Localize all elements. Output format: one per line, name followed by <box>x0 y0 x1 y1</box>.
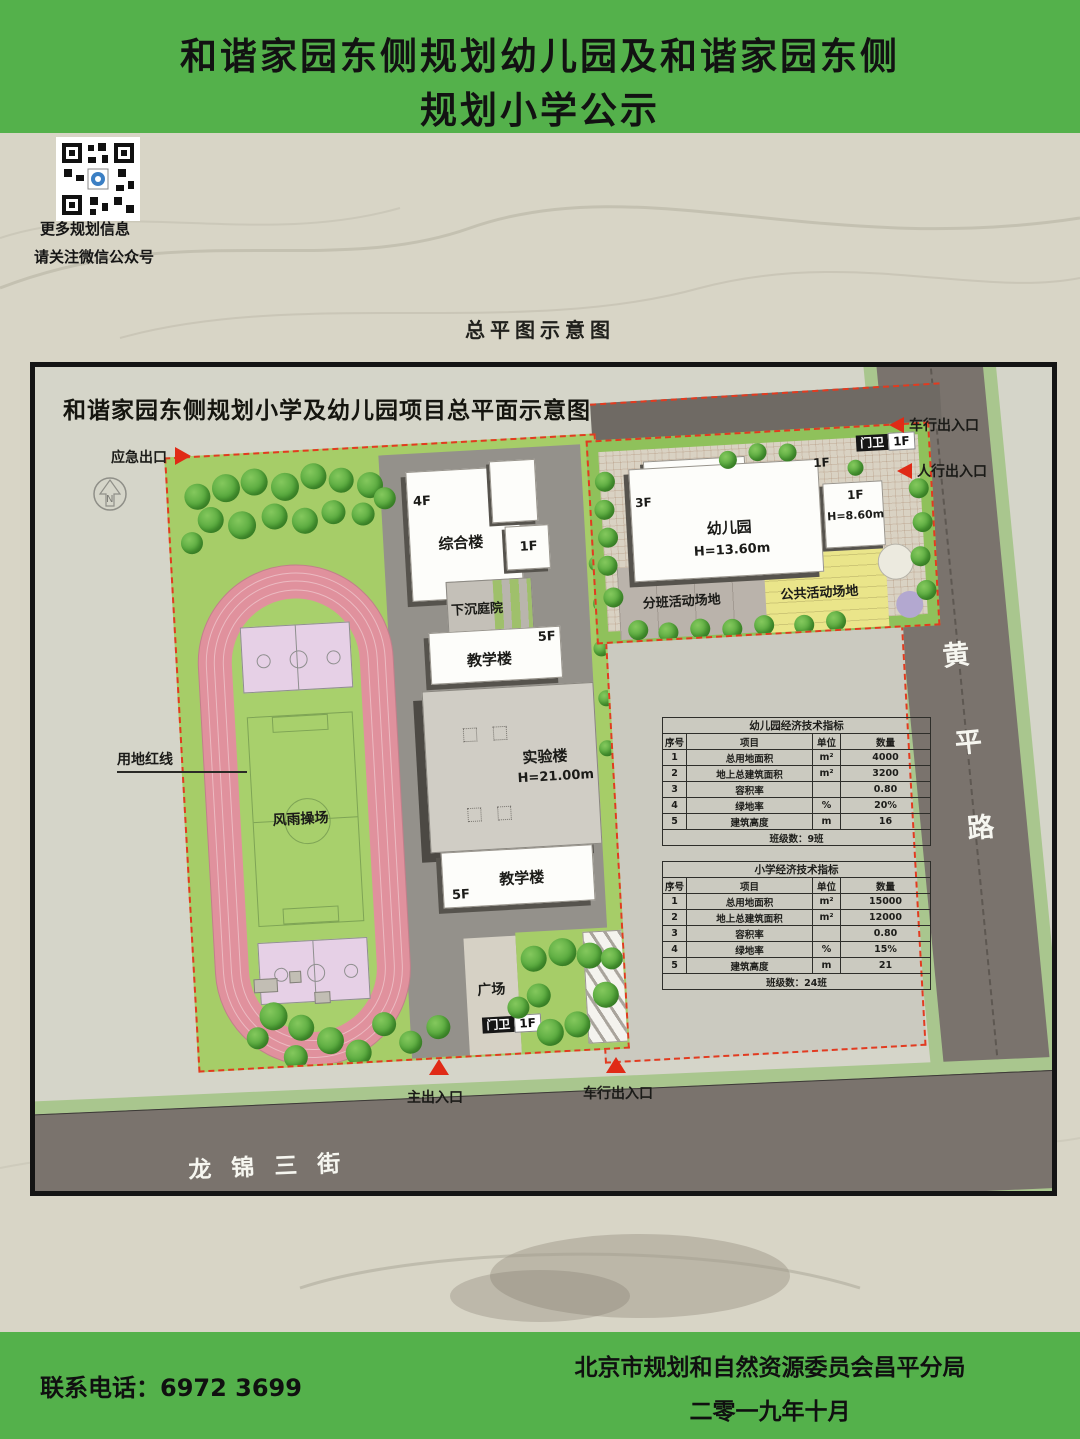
parking-area <box>582 930 628 1044</box>
table-row: 1 总用地面积 m² 4000 <box>663 750 931 766</box>
play-equipment <box>253 978 278 993</box>
kindergarten-east-wing: 1F H=8.60m <box>822 480 886 548</box>
kindergarten-gatehouse: 门卫1F <box>856 429 916 452</box>
poster-title-line1: 和谐家园东侧规划幼儿园及和谐家园东侧 <box>0 26 1080 80</box>
cell: 3 <box>663 926 687 942</box>
footer-banner: 联系电话：6972 3699 北京市规划和自然资源委员会昌平分局 二零一九年十月 <box>0 1332 1080 1439</box>
cell: 建筑高度 <box>687 814 813 830</box>
vehicle-entrance-north-arrow-icon <box>889 417 904 433</box>
road-east-name-char2: 平 <box>953 719 984 760</box>
table-title: 小学经济技术指标 <box>663 862 931 878</box>
cell: 1 <box>663 894 687 910</box>
plaza: 广场 <box>463 936 521 1056</box>
red-line-leader <box>117 771 247 773</box>
road-east-name-char1: 黄 <box>940 632 971 673</box>
primary-school-indicators-table: 小学经济技术指标 序号 项目 单位 数量 1 总用地面积 m² 15000 2 … <box>662 861 931 990</box>
kindergarten-height-label: H=13.60m <box>694 541 771 560</box>
center-block-floors-label: 1F <box>813 455 830 470</box>
cell: m² <box>813 766 841 782</box>
tree-icon <box>351 502 375 526</box>
cell: 15% <box>841 942 931 958</box>
roof-hatch <box>463 728 478 743</box>
table-title-row: 幼儿园经济技术指标 <box>663 718 931 734</box>
plan-title: 和谐家园东侧规划小学及幼儿园项目总平面示意图 <box>63 391 591 425</box>
cell: 地上总建筑面积 <box>687 910 813 926</box>
table-row: 1 总用地面积 m² 15000 <box>663 894 931 910</box>
cell: 3200 <box>841 766 931 782</box>
compass-icon: N <box>91 475 129 513</box>
pedestrian-entrance-label: 人行出入口 <box>917 461 987 481</box>
col-header: 项目 <box>687 734 813 750</box>
main-entrance-label: 主出入口 <box>407 1087 463 1107</box>
qr-caption-line1: 更多规划信息 <box>40 218 130 239</box>
east-wing-height-label: H=8.60m <box>827 507 885 523</box>
kg-gatehouse-label: 门卫 <box>856 434 889 452</box>
red-line-label: 用地红线 <box>117 749 173 769</box>
court-circle <box>256 654 271 669</box>
table-row: 5 建筑高度 m 21 <box>663 958 931 974</box>
roof-hatch <box>497 806 512 821</box>
court-circle <box>307 963 326 982</box>
table-title-row: 小学经济技术指标 <box>663 862 931 878</box>
kindergarten-label: 幼儿园 <box>706 516 752 539</box>
road-east-name-char3: 路 <box>965 805 996 846</box>
cell: % <box>813 798 841 814</box>
cell: m <box>813 958 841 974</box>
public-activity-label: 公共活动场地 <box>780 580 859 603</box>
cell: 0.80 <box>841 782 931 798</box>
col-header: 数量 <box>841 734 931 750</box>
main-entrance-arrow-icon <box>429 1059 449 1075</box>
teaching-building-north: 教学楼 5F <box>428 626 563 685</box>
school-site: 风雨操场 4F 综合楼 1F 下沉庭院 教学楼 5F <box>164 433 630 1072</box>
plaza-label: 广场 <box>477 978 506 1000</box>
col-header: 数量 <box>841 878 931 894</box>
play-equipment <box>289 971 302 984</box>
laboratory-height-label: H=21.00m <box>517 767 594 786</box>
cell: m² <box>813 750 841 766</box>
cell: 5 <box>663 814 687 830</box>
court-circle <box>344 964 359 979</box>
cell: 总用地面积 <box>687 894 813 910</box>
table-footer: 班级数：9班 <box>663 830 931 846</box>
tree-icon <box>180 532 203 555</box>
cell: 绿地率 <box>687 942 813 958</box>
tree-icon <box>227 511 257 541</box>
sunken-courtyard: 下沉庭院 <box>446 577 535 634</box>
cell: 4000 <box>841 750 931 766</box>
table-footer: 班级数：24班 <box>663 974 931 990</box>
poster-title-line2: 规划小学公示 <box>0 80 1080 134</box>
road-south-wrap: 龙锦三街 <box>30 1056 1057 1196</box>
basketball-court-north <box>240 621 354 693</box>
table-row: 4 绿地率 % 20% <box>663 798 931 814</box>
laboratory-building: 实验楼 H=21.00m <box>422 682 603 853</box>
cell: % <box>813 942 841 958</box>
poster-page: 和谐家园东侧规划幼儿园及和谐家园东侧 规划小学公示 更多规划信息 请关注微信公众… <box>0 0 1080 1439</box>
svg-text:N: N <box>106 494 113 505</box>
publish-date: 二零一九年十月 <box>480 1392 1060 1426</box>
cell: 5 <box>663 958 687 974</box>
table-row: 5 建筑高度 m 16 <box>663 814 931 830</box>
cell: m² <box>813 910 841 926</box>
gatehouse-floors-label: 1F <box>514 1013 542 1032</box>
table-row: 4 绿地率 % 15% <box>663 942 931 958</box>
sports-ground-label: 风雨操场 <box>272 807 329 830</box>
tree-icon <box>291 507 318 534</box>
kindergarten-indicators-table: 幼儿园经济技术指标 序号 项目 单位 数量 1 总用地面积 m² 4000 2 … <box>662 717 931 846</box>
col-header: 单位 <box>813 734 841 750</box>
annex-1f-block: 1F <box>505 524 551 570</box>
cell <box>813 926 841 942</box>
tree-icon <box>270 472 300 502</box>
cell: 1 <box>663 750 687 766</box>
cell: 0.80 <box>841 926 931 942</box>
agency-name: 北京市规划和自然资源委员会昌平分局 <box>480 1348 1060 1382</box>
complex-floors-label: 4F <box>413 494 432 510</box>
emergency-exit-arrow-icon <box>175 447 191 465</box>
cell: 16 <box>841 814 931 830</box>
table-header-row: 序号 项目 单位 数量 <box>663 734 931 750</box>
table-row: 3 容积率 0.80 <box>663 926 931 942</box>
table-footer-row: 班级数：9班 <box>663 830 931 846</box>
cell: m² <box>813 894 841 910</box>
gatehouse-label: 门卫 <box>482 1016 515 1034</box>
tree-icon <box>211 473 241 503</box>
cell: 12000 <box>841 910 931 926</box>
teaching-north-floors-label: 5F <box>537 629 556 645</box>
cell: 总用地面积 <box>687 750 813 766</box>
school-gatehouse: 门卫1F <box>482 1011 542 1034</box>
cell: 3 <box>663 782 687 798</box>
cell: 容积率 <box>687 926 813 942</box>
cell: 容积率 <box>687 782 813 798</box>
qr-caption-line2: 请关注微信公众号 <box>34 246 154 267</box>
goal-box <box>272 714 329 733</box>
tree-icon <box>197 506 224 533</box>
class-activity-label: 分班活动场地 <box>642 588 721 611</box>
road-south-name: 龙锦三街 <box>188 1143 361 1184</box>
tree-icon <box>321 500 346 525</box>
cell: 20% <box>841 798 931 814</box>
complex-annex <box>489 459 538 523</box>
cell: 2 <box>663 910 687 926</box>
cell: 4 <box>663 942 687 958</box>
vehicle-entrance-north-label: 车行出入口 <box>909 415 979 435</box>
play-equipment <box>314 991 331 1004</box>
cell: 绿地率 <box>687 798 813 814</box>
col-header: 项目 <box>687 878 813 894</box>
table-row: 2 地上总建筑面积 m² 12000 <box>663 910 931 926</box>
cell <box>813 782 841 798</box>
tree-icon <box>184 483 211 510</box>
vehicle-entrance-south-label: 车行出入口 <box>583 1083 653 1103</box>
cell: 地上总建筑面积 <box>687 766 813 782</box>
header-banner: 和谐家园东侧规划幼儿园及和谐家园东侧 规划小学公示 <box>0 0 1080 133</box>
tree-icon <box>240 468 268 496</box>
contact-phone: 联系电话：6972 3699 <box>40 1368 302 1403</box>
cell: 建筑高度 <box>687 958 813 974</box>
roof-hatch <box>467 807 482 822</box>
emergency-exit-label: 应急出口 <box>111 447 167 467</box>
col-header: 序号 <box>663 734 687 750</box>
roof-hatch <box>493 726 508 741</box>
col-header: 单位 <box>813 878 841 894</box>
complex-building-label: 综合楼 <box>438 531 484 554</box>
site-plan: 黄 平 路 龙锦三街 <box>30 362 1057 1196</box>
court-circle <box>326 650 341 665</box>
table-title: 幼儿园经济技术指标 <box>663 718 931 734</box>
cell: 15000 <box>841 894 931 910</box>
tree-icon <box>261 503 288 530</box>
court-circle <box>289 650 308 669</box>
col-header: 序号 <box>663 878 687 894</box>
cell: 4 <box>663 798 687 814</box>
kindergarten-site: 分班活动场地 公共活动场地 1F H=5.40m 3F 幼儿园 H=13.60m… <box>586 422 941 645</box>
kindergarten-floors-label: 3F <box>635 495 652 510</box>
qr-code <box>56 137 140 221</box>
cell: 21 <box>841 958 931 974</box>
kindergarten-main-building: 3F 幼儿园 H=13.60m <box>628 459 824 582</box>
teaching-building-south: 教学楼 5F <box>441 844 596 908</box>
phone-number: 6972 3699 <box>160 1374 302 1402</box>
cell: 2 <box>663 766 687 782</box>
cell: m <box>813 814 841 830</box>
teaching-south-label: 教学楼 <box>499 866 545 889</box>
laboratory-label: 实验楼 <box>522 745 568 768</box>
table-header-row: 序号 项目 单位 数量 <box>663 878 931 894</box>
pedestrian-entrance-arrow-icon <box>897 463 912 479</box>
goal-box <box>283 906 340 925</box>
table-row: 3 容积率 0.80 <box>663 782 931 798</box>
annex-floor-label: 1F <box>519 539 538 555</box>
sunken-courtyard-label: 下沉庭院 <box>451 597 504 619</box>
table-row: 2 地上总建筑面积 m² 3200 <box>663 766 931 782</box>
table-footer-row: 班级数：24班 <box>663 974 931 990</box>
phone-label: 联系电话： <box>40 1374 160 1402</box>
tree-icon <box>328 467 354 493</box>
teaching-north-label: 教学楼 <box>466 647 512 670</box>
tree-icon <box>300 463 327 490</box>
vehicle-entrance-south-arrow-icon <box>606 1057 626 1073</box>
section-label: 总平图示意图 <box>0 314 1080 343</box>
east-wing-floors-label: 1F <box>847 487 864 502</box>
teaching-south-floors-label: 5F <box>452 887 471 903</box>
